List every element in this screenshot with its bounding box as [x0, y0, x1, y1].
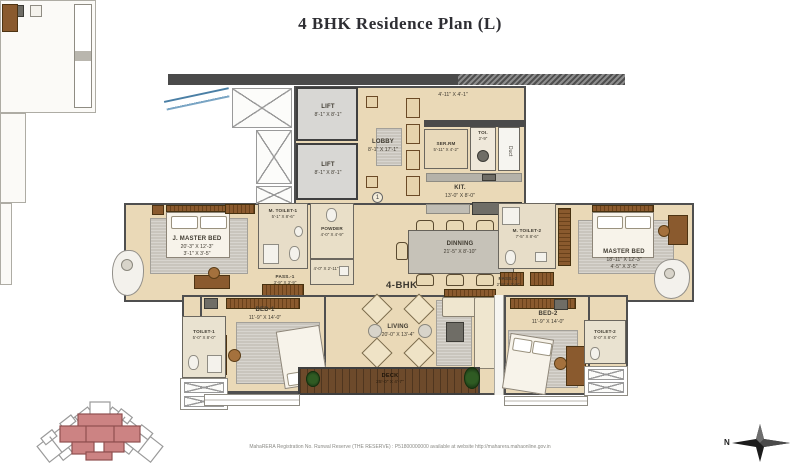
master-headboard: [592, 205, 654, 212]
armchair-icon: [361, 337, 392, 368]
tv-unit-icon: [446, 322, 464, 342]
lobby-seat-icon: [406, 124, 420, 144]
void-shaft-1: [232, 88, 292, 128]
basin-counter-icon: [204, 298, 218, 309]
lift-1-label: LIFT: [298, 104, 358, 112]
desk-chair-icon: [554, 357, 567, 370]
compass-star-icon: [722, 420, 792, 466]
duct-shaft: Duct: [498, 127, 520, 171]
dining-dims: 21'-5" X 8'-10": [409, 249, 511, 256]
page-title: 4 BHK Residence Plan (L): [0, 14, 800, 34]
wc-icon: [326, 208, 337, 222]
j-master-bed-dims: 20'-3" X 12'-3": [146, 244, 248, 251]
dresser-2: [584, 366, 628, 396]
foyer-area: 4'-11" X 4'-1": [424, 92, 482, 99]
foyer-dims: 4'-11" X 4'-1": [424, 92, 482, 99]
store-room: 4'-0" X 2'-11": [310, 259, 354, 285]
north-arrow: N: [722, 420, 792, 466]
toi-room: TOI.2'-9": [470, 127, 496, 171]
master-wardrobe: [558, 208, 571, 266]
armchair-icon: [361, 293, 392, 324]
lobby-seat-icon: [366, 96, 378, 108]
wc-icon: [505, 250, 516, 265]
deck-area: DECK25'-0" X 4'-7": [298, 367, 480, 395]
desk-chair-icon: [208, 267, 220, 279]
shower-icon: [502, 207, 520, 225]
armchair-icon: [403, 337, 434, 368]
wc-icon: [289, 246, 300, 261]
plant-icon: [306, 371, 320, 387]
master-bed-dims2: 4'-5" X 3'-5": [574, 264, 674, 271]
living-dims: 20'-0" X 13'-4": [372, 332, 424, 339]
bed-2-room: BED-211'-9" X 14'-0": [504, 295, 590, 395]
j-master-bed-label: J. MASTER BED: [146, 236, 248, 244]
rera-footer-text: MahaRERA Registration No. Runwal Reserve…: [0, 444, 800, 450]
m-toilet-1-room: M. TOILET-15'-1" X 8'-6": [258, 203, 308, 269]
dining-chair-icon: [446, 274, 464, 286]
lobby-label: LOBBY: [360, 139, 406, 147]
right-balcony: [0, 203, 12, 285]
powder-room: POWDER4'-0" X 4'-9": [310, 203, 354, 259]
keynote-marker-1: 1: [372, 192, 383, 203]
left-balcony: [0, 113, 26, 203]
pass-2-dims: 2'-9" X 3'-9": [486, 282, 530, 288]
servant-room-dims: 5'-11" X 4'-2": [425, 147, 467, 153]
toilet-1-dims: 5'-0" X 8'-0": [183, 335, 225, 341]
toilet-1-room: TOILET-15'-0" X 8'-0": [182, 316, 226, 378]
lobby-dims: 8'-1" X 17'-1": [360, 147, 406, 154]
deck-dims: 25'-0" X 4'-7": [340, 380, 440, 386]
lobby-seat-icon: [366, 176, 378, 188]
dining-label: DINNING: [409, 241, 511, 249]
glass-canopy-edge: [164, 87, 230, 109]
wc-icon: [590, 347, 600, 360]
bed2-desk: [566, 346, 586, 386]
lobby-seat-icon: [406, 98, 420, 118]
toilet-2-room: TOILET-25'-0" X 8'-0": [584, 320, 626, 364]
lobby-seat-icon: [406, 150, 420, 170]
bed-1-label: BED-1: [226, 307, 304, 315]
basin-icon: [535, 252, 547, 262]
toi-dims: 2'-9": [471, 136, 495, 142]
void-shaft-3: [256, 186, 292, 204]
lift-1: LIFT8'-1" X 8'-1": [296, 87, 358, 141]
powder-dims: 4'-0" X 4'-9": [311, 232, 353, 238]
dresser-under-mt2b: [530, 272, 554, 286]
lift-2-label: LIFT: [298, 162, 358, 170]
lift-2: LIFT8'-1" X 8'-1": [296, 143, 358, 200]
balcony-ledge-left: [204, 394, 300, 406]
duct-label: Duct: [507, 136, 513, 166]
j-master-headboard: [166, 205, 230, 212]
service-wall: [424, 120, 526, 127]
toilet-2-dims: 5'-0" X 8'-0": [585, 335, 625, 341]
kitchen-counter-2: [426, 204, 470, 214]
dining-chair-icon: [396, 242, 408, 260]
desk-chair-icon: [228, 349, 241, 362]
tv-console-wall: [444, 289, 496, 297]
basin-counter-icon: [554, 299, 568, 310]
side-table: [152, 205, 164, 215]
balcony-ledge-right: [504, 396, 588, 406]
living-room: LIVING20'-0" X 13'-4": [328, 290, 444, 376]
master-bed-room: MASTER BED 18'-11" X 12'-3" 4'-5" X 3'-5…: [556, 203, 694, 302]
passage-1: PASS.-1 3'-9" X 3'-9": [262, 274, 308, 286]
servant-room: SER.RM5'-11" X 4'-2": [424, 129, 468, 169]
washer-icon: [477, 150, 489, 162]
shower-icon: [207, 355, 222, 373]
m-toilet-2-room: M. TOILET-27'-5" X 8'-6": [498, 203, 556, 269]
m-toilet-2-dims: 7'-5" X 8'-6": [499, 234, 555, 240]
lift-2-dims: 8'-1" X 8'-1": [298, 170, 358, 177]
bed2-bed: [502, 333, 554, 395]
equipment-icon: [30, 5, 42, 17]
master-bed-label: MASTER BED: [574, 249, 674, 257]
plant-icon: [464, 367, 480, 389]
kitchen-sink-icon: [482, 174, 496, 181]
bed-2-label: BED-2: [510, 311, 586, 319]
pass-1-dims: 3'-9" X 3'-9": [262, 280, 308, 286]
armchair-icon: [403, 293, 434, 324]
floorplan-page: { "title": "4 BHK Residence Plan (L)", "…: [0, 0, 800, 469]
bed-2-dims: 11'-9" X 14'-0": [510, 319, 586, 326]
kitchen-dims: 13'-0" X 8'-0": [430, 193, 490, 200]
desk-chair-icon: [658, 225, 670, 237]
sofa-right: [474, 297, 496, 369]
kitchen-counter: [426, 173, 522, 182]
master-desk: [668, 215, 688, 245]
store-dims: 4'-0" X 2'-11": [311, 266, 341, 272]
shower-icon: [263, 244, 279, 264]
void-shaft-2: [256, 130, 292, 184]
lobby-room: LOBBY8'-1" X 17'-1": [360, 87, 424, 208]
wc-icon: [188, 355, 199, 370]
j-master-bed-room: J. MASTER BED 20'-3" X 12'-3" 3'-1" X 3'…: [124, 203, 258, 302]
kitchen-label: KIT.: [430, 185, 490, 193]
dining-chair-icon: [416, 274, 434, 286]
top-slab-hatch: [458, 74, 625, 85]
j-master-bed-dims2: 3'-1" X 3'-5": [146, 251, 248, 258]
j-master-wardrobe: [225, 204, 255, 214]
master-bed-dims: 18'-11" X 12'-3": [574, 257, 674, 264]
terrace-rail: [74, 4, 92, 108]
basin-icon: [294, 226, 303, 237]
living-label: LIVING: [372, 324, 424, 332]
balcony-desk: [2, 4, 18, 32]
lift-1-dims: 8'-1" X 8'-1": [298, 112, 358, 119]
m-toilet-1-dims: 5'-1" X 8'-6": [259, 214, 307, 220]
passage-2: PASS.-2 2'-9" X 3'-9": [486, 276, 530, 288]
bed-1-dims: 11'-9" X 14'-0": [226, 315, 304, 322]
lobby-seat-icon: [406, 176, 420, 196]
